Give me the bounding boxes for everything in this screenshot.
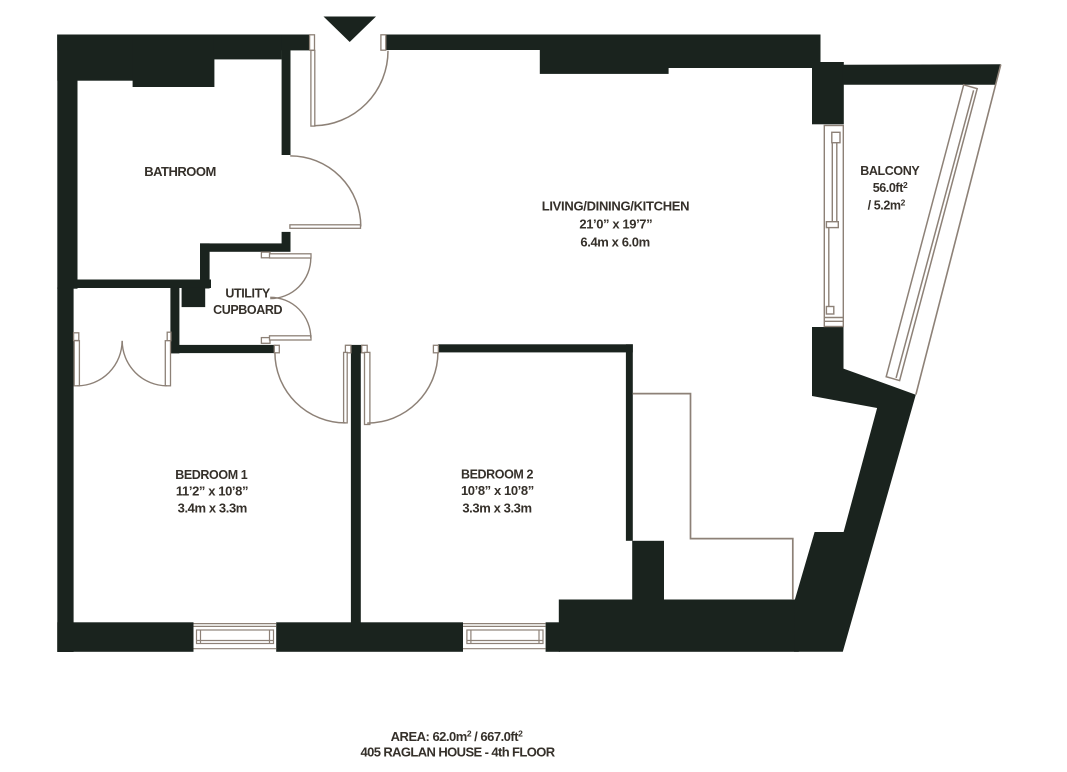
svg-text:56.0ft2: 56.0ft2	[873, 180, 908, 195]
svg-text:10’8” x 10’8”: 10’8” x 10’8”	[461, 483, 534, 498]
svg-text:BATHROOM: BATHROOM	[144, 164, 216, 179]
svg-text:6.4m x 6.0m: 6.4m x 6.0m	[580, 234, 649, 249]
svg-text:AREA: 62.0m2 / 667.0ft2: AREA: 62.0m2 / 667.0ft2	[391, 729, 523, 745]
svg-text:11’2” x 10’8”: 11’2” x 10’8”	[176, 484, 248, 499]
svg-text:3.4m x 3.3m: 3.4m x 3.3m	[178, 501, 247, 516]
svg-text:BEDROOM 2: BEDROOM 2	[461, 468, 534, 482]
svg-text:UTILITY: UTILITY	[225, 286, 270, 300]
svg-text:BEDROOM 1: BEDROOM 1	[175, 468, 248, 482]
svg-text:21’0” x 19’7”: 21’0” x 19’7”	[579, 217, 652, 232]
svg-text:BALCONY: BALCONY	[860, 164, 920, 178]
svg-text:3.3m x 3.3m: 3.3m x 3.3m	[462, 501, 531, 516]
svg-text:/ 5.2m2: / 5.2m2	[868, 197, 906, 212]
svg-text:CUPBOARD: CUPBOARD	[213, 303, 282, 317]
svg-text:405 RAGLAN HOUSE - 4th FLOOR: 405 RAGLAN HOUSE - 4th FLOOR	[360, 745, 555, 760]
svg-text:LIVING/DINING/KITCHEN: LIVING/DINING/KITCHEN	[542, 199, 690, 214]
